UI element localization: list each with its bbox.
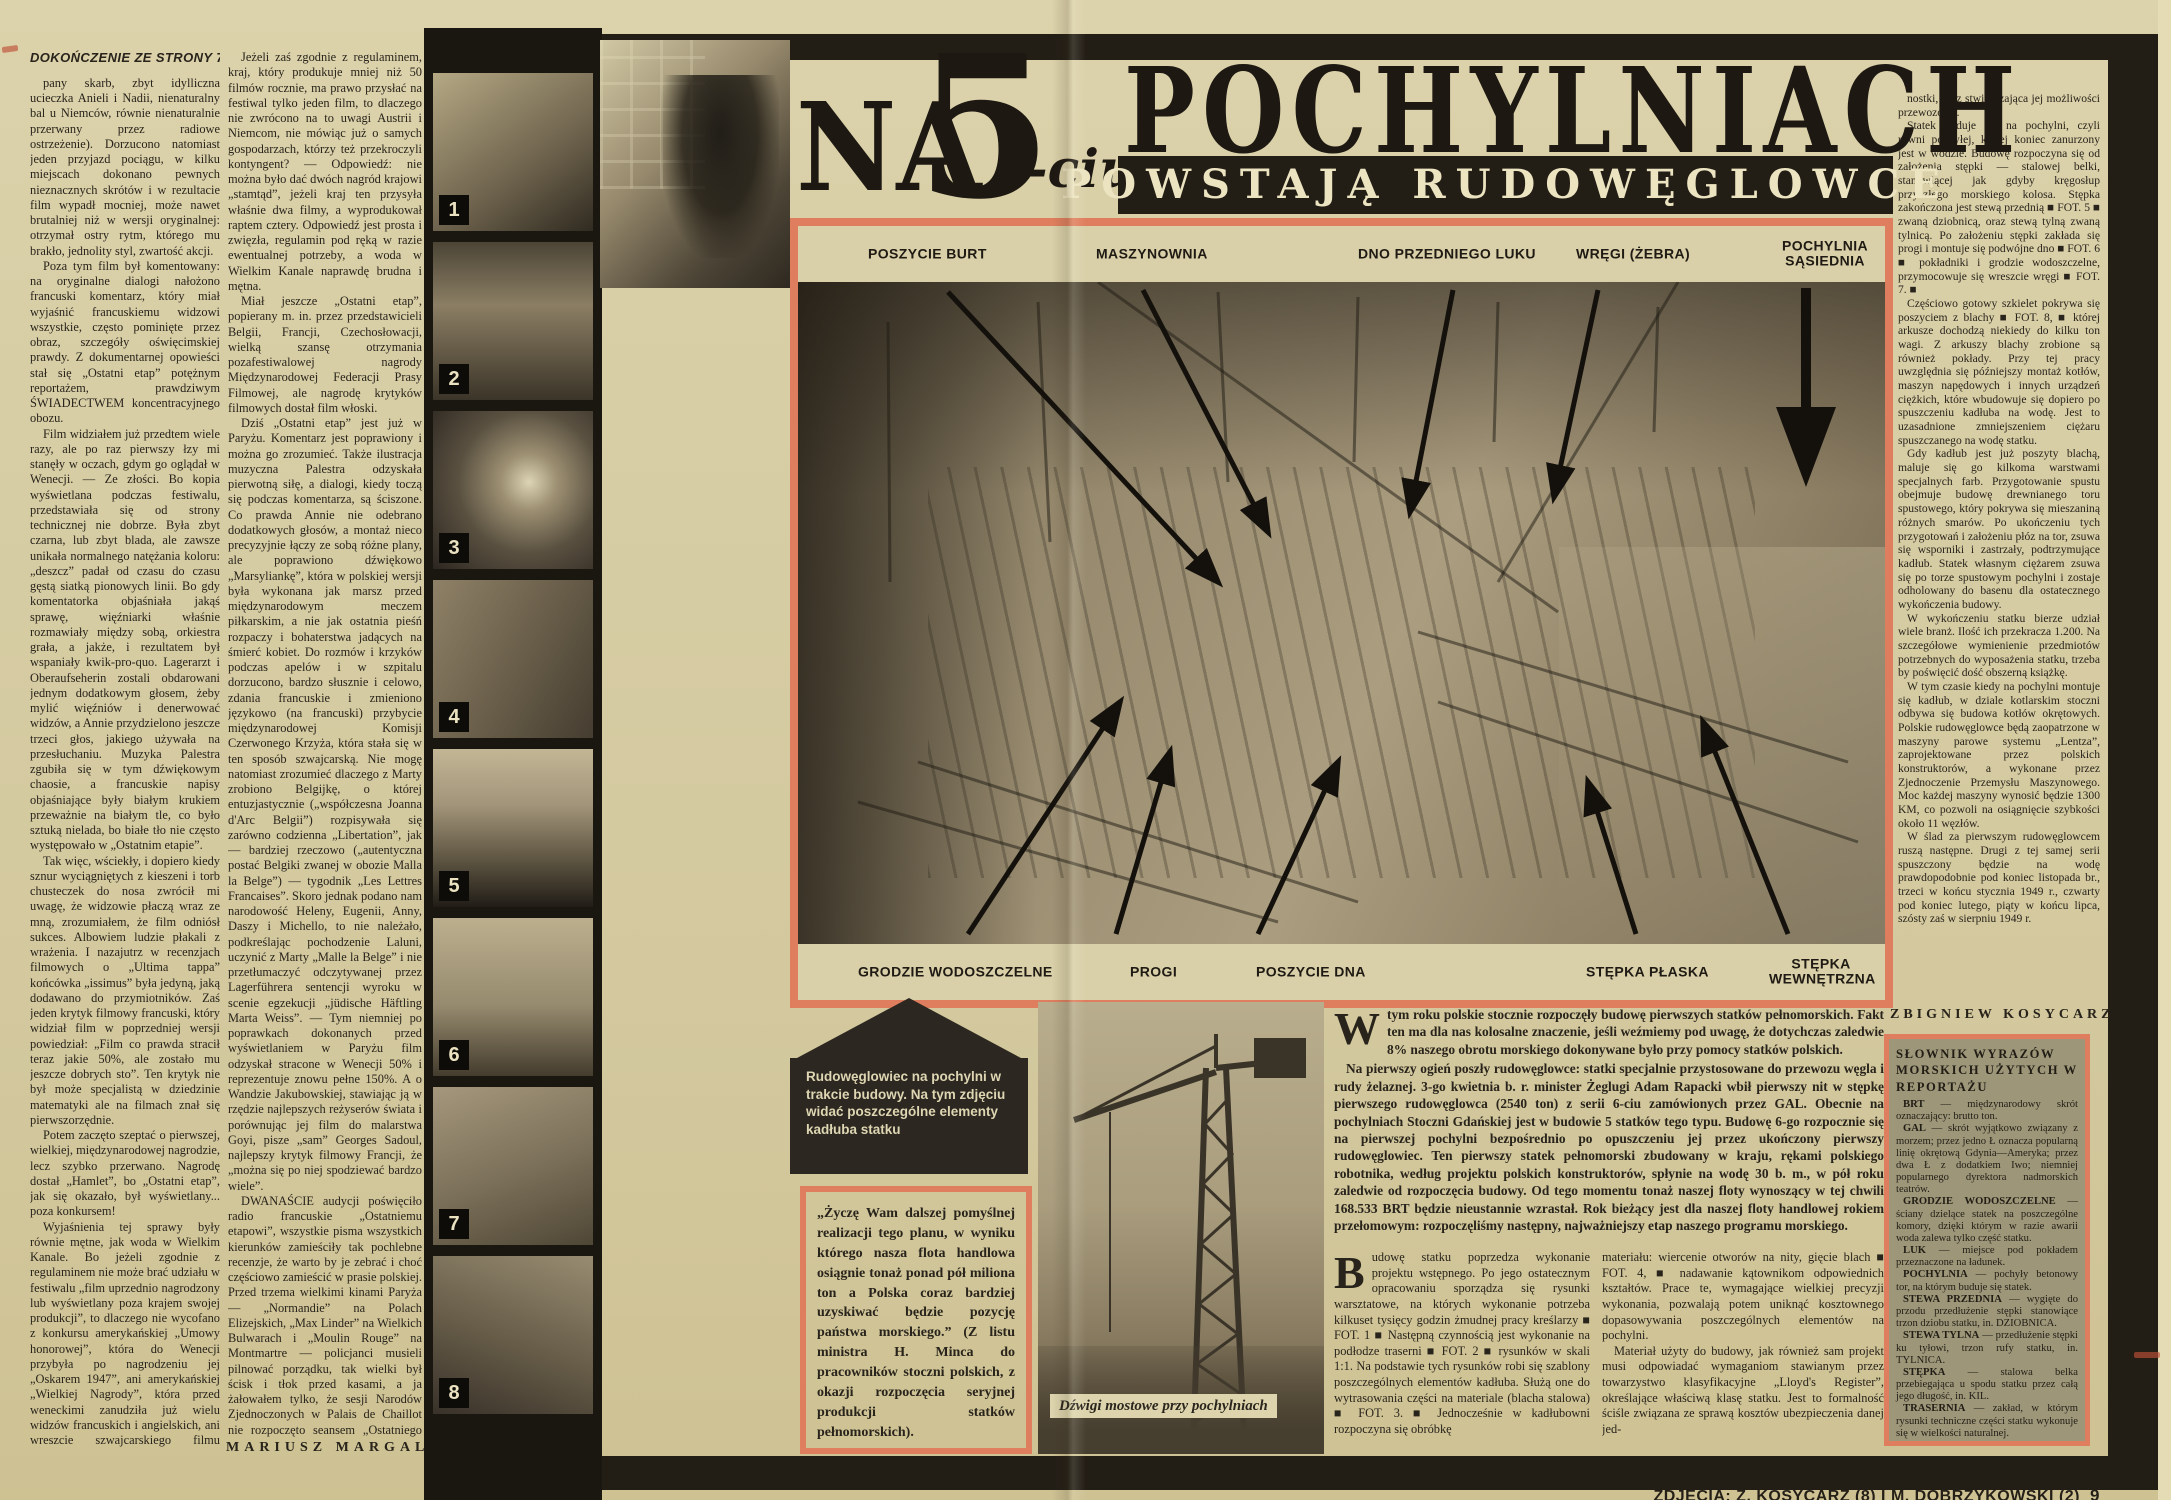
strip-photo: 7 bbox=[433, 1087, 593, 1245]
dictionary-term: GRODZIE WODOSZCZELNE bbox=[1903, 1196, 2056, 1207]
dictionary-term: STEWA PRZEDNIA bbox=[1903, 1294, 2002, 1305]
paragraph: Dziś „Ostatni etap” jest już w Paryżu. K… bbox=[228, 416, 422, 1194]
magazine-spread: DOKOŃCZENIE ZE STRONY 7-MEJ pany skarb, … bbox=[0, 0, 2171, 1500]
paragraph: Potem zaczęto szeptać o pierwszej, wielk… bbox=[30, 1128, 220, 1220]
paragraph: W tym czasie kiedy na pochylni montuje s… bbox=[1898, 680, 2100, 830]
photo-number-badge: 1 bbox=[439, 195, 469, 225]
intro-text-2: Na pierwszy ogień poszły rudowęglowce: s… bbox=[1334, 1060, 1884, 1234]
dictionary-entry: GAL — skrót wyjątkowo związany z morzem;… bbox=[1896, 1123, 2078, 1196]
build-text-a: udowę statku poprzedza wykonanie projekt… bbox=[1334, 1250, 1590, 1436]
dictionary-term: STEWA TYLNA bbox=[1903, 1330, 1979, 1341]
label-stepka-wewnetrzna: STĘPKA WEWNĘTRZNA bbox=[1769, 957, 1873, 988]
paragraph: W ślad za pierwszym rudowęglowcem ruszą … bbox=[1898, 830, 2100, 926]
photo-credit: ZDJĘCIA: Z. KOSYCARZ (8) I M. DOBRZYKOWS… bbox=[1430, 1489, 2080, 1500]
label-pochylnia-sasiednia: POCHYLNIA SĄSIEDNIA bbox=[1773, 239, 1877, 270]
page-number: 9 bbox=[2090, 1487, 2099, 1500]
quote-text: „Życzę Wam dalszej pomyślnej realizacji … bbox=[817, 1206, 1015, 1440]
dictionary-title: SŁOWNIK WYRAZÓW MORSKICH UŻYTYCH W REPOR… bbox=[1896, 1046, 2078, 1095]
paragraph: Wyjaśnienia tej sprawy były równie mętne… bbox=[30, 1220, 220, 1450]
dictionary-definition: — międzynarodowy skrót oznaczający: brut… bbox=[1896, 1099, 2078, 1122]
crane-photo: Dźwigi mostowe przy pochylniach bbox=[1038, 1002, 1324, 1454]
dictionary-entry: GRODZIE WODOSZCZELNE — ściany dzielące s… bbox=[1896, 1196, 2078, 1245]
label-stepka-plaska: STĘPKA PŁASKA bbox=[1586, 964, 1709, 979]
photo-number-badge: 3 bbox=[439, 533, 469, 563]
dropcap-b: B bbox=[1334, 1250, 1372, 1292]
strip-photo: 3 bbox=[433, 411, 593, 569]
photo-number-badge: 2 bbox=[439, 364, 469, 394]
dictionary-term: TRASERNIA bbox=[1903, 1403, 1965, 1414]
photo-number-badge: 7 bbox=[439, 1209, 469, 1239]
column-2-paragraphs: Jeżeli zaś zgodnie z regulaminem, kraj, … bbox=[228, 50, 422, 1438]
intro-paragraph: Wtym roku polskie stocznie rozpoczęły bu… bbox=[1334, 1006, 1884, 1246]
strip-photo: 4 bbox=[433, 580, 593, 738]
column-1-paragraphs: pany skarb, zbyt idylliczna ucieczka Ani… bbox=[30, 76, 220, 1450]
dictionary-entry: STEWA PRZEDNIA — wygięte do przodu przed… bbox=[1896, 1294, 2078, 1331]
strip-photo: 6 bbox=[433, 918, 593, 1076]
crane-caption: Dźwigi mostowe przy pochylniach bbox=[1050, 1394, 1277, 1418]
paragraph: materiału: wiercenie otworów na nity, gi… bbox=[1602, 1250, 1884, 1344]
reporter-signature: ZBIGNIEW KOSYCARZ bbox=[1890, 1008, 2104, 1022]
headline-pochylniach: POCHYLNIACH bbox=[1124, 52, 2023, 170]
paragraph: Tak więc, wściekły, i dopiero kiedy sznu… bbox=[30, 854, 220, 1129]
strip-photo: 1 bbox=[433, 73, 593, 231]
right-column: nostki, oraz stwierdzająca jej możliwośc… bbox=[1898, 92, 2100, 1004]
arrow-caption-box: Rudowęglowiec na pochylni w trakcie budo… bbox=[790, 1058, 1028, 1174]
dictionary-entry: STEWA TYLNA — przedłużenie stępki ku tył… bbox=[1896, 1330, 2078, 1367]
paragraph: Materiał użyty do budowy, jak również sa… bbox=[1602, 1344, 1884, 1438]
dictionary-entry: LUK — miejsce pod pokładem przeznaczone … bbox=[1896, 1245, 2078, 1269]
maritime-dictionary-box: SŁOWNIK WYRAZÓW MORSKICH UŻYTYCH W REPOR… bbox=[1884, 1034, 2090, 1446]
shipyard-photo bbox=[798, 282, 1885, 944]
build-column-a: Budowę statku poprzedza wykonanie projek… bbox=[1334, 1250, 1590, 1456]
paragraph: Częściowo gotowy szkielet pokrywa się po… bbox=[1898, 297, 2100, 447]
article-column-2: Jeżeli zaś zgodnie z regulaminem, kraj, … bbox=[228, 50, 422, 1438]
dictionary-term: GAL bbox=[1903, 1123, 1926, 1134]
dictionary-entry: WĘZEŁ MORSKI — jednostka określająca szy… bbox=[1896, 1440, 2078, 1446]
dictionary-term: LUK bbox=[1903, 1245, 1926, 1256]
paragraph: Jeżeli zaś zgodnie z regulaminem, kraj, … bbox=[228, 50, 422, 294]
photo-number-badge: 5 bbox=[439, 871, 469, 901]
dictionary-term: WĘZEŁ MORSKI bbox=[1903, 1440, 2000, 1446]
photo-number-badge: 4 bbox=[439, 702, 469, 732]
author-signature: MARIUSZ MARGAL bbox=[226, 1440, 426, 1456]
headline-subtitle-bar: POWSTAJĄ RUDOWĘGLOWCE bbox=[1118, 156, 1893, 214]
dictionary-term: STĘPKA bbox=[1903, 1367, 1945, 1378]
dictionary-term: POCHYLNIA bbox=[1903, 1269, 1968, 1280]
dictionary-entry: BRT — międzynarodowy skrót oznaczający: … bbox=[1896, 1099, 2078, 1123]
continuation-header: DOKOŃCZENIE ZE STRONY 7-MEJ bbox=[30, 50, 220, 66]
paragraph: Miał jeszcze „Ostatni etap”, popierany m… bbox=[228, 294, 422, 416]
build-column-b: materiału: wiercenie otworów na nity, gi… bbox=[1602, 1250, 1884, 1456]
figure-silhouette bbox=[661, 75, 779, 259]
headline-subtitle: POWSTAJĄ RUDOWĘGLOWCE bbox=[1061, 165, 1950, 205]
photo-number-badge: 8 bbox=[439, 1378, 469, 1408]
label-progi: PROGI bbox=[1130, 964, 1177, 979]
draftsman-photo bbox=[600, 40, 790, 288]
label-maszynownia: MASZYNOWNIA bbox=[1096, 246, 1208, 261]
dictionary-term: BRT bbox=[1903, 1099, 1924, 1110]
right-column-paragraphs: nostki, oraz stwierdzająca jej możliwośc… bbox=[1898, 92, 2100, 926]
dropcap-w: W bbox=[1334, 1006, 1387, 1048]
minister-quote-box: „Życzę Wam dalszej pomyślnej realizacji … bbox=[800, 1186, 1032, 1454]
dictionary-entry: TRASERNIA — zakład, w którym rysunki tec… bbox=[1896, 1403, 2078, 1440]
right-rule-bar bbox=[2108, 34, 2158, 1490]
dictionary-entry: STĘPKA — stalowa belka przebiegająca u s… bbox=[1896, 1367, 2078, 1404]
paragraph: DWANAŚCIE audycji poświęciło radio franc… bbox=[228, 1194, 422, 1438]
label-poszycie-dna: POSZYCIE DNA bbox=[1256, 964, 1366, 979]
paragraph: pany skarb, zbyt idylliczna ucieczka Ani… bbox=[30, 76, 220, 259]
paragraph: W wykończeniu statku bierze udział wiele… bbox=[1898, 612, 2100, 680]
article-column-1: DOKOŃCZENIE ZE STRONY 7-MEJ pany skarb, … bbox=[30, 50, 220, 1450]
photo-strip: 1 2 3 4 5 6 bbox=[424, 28, 602, 1500]
photo-strip-items: 1 2 3 4 5 6 bbox=[424, 62, 602, 1425]
label-wregi-zebra: WRĘGI (ŻEBRA) bbox=[1576, 246, 1690, 261]
main-shipyard-photo-frame: POSZYCIE BURT MASZYNOWNIA DNO PRZEDNIEGO… bbox=[790, 218, 1893, 1008]
bottom-label-bar: GRODZIE WODOSZCZELNE PROGI POSZYCIE DNA … bbox=[798, 944, 1885, 1000]
dictionary-entries: BRT — międzynarodowy skrót oznaczający: … bbox=[1896, 1099, 2078, 1446]
intro-text-1: tym roku polskie stocznie rozpoczęły bud… bbox=[1387, 1007, 1884, 1057]
strip-photo: 2 bbox=[433, 242, 593, 400]
page-edge bbox=[2158, 0, 2171, 1500]
label-poszycie-burt: POSZYCIE BURT bbox=[868, 246, 987, 261]
label-grodzie-wodoszczelne: GRODZIE WODOSZCZELNE bbox=[858, 964, 1053, 979]
strip-photo: 5 bbox=[433, 749, 593, 907]
label-arrows bbox=[798, 282, 1885, 944]
red-pencil-mark bbox=[2134, 1352, 2160, 1358]
paragraph: Film widziałem już przedtem wiele razy, … bbox=[30, 427, 220, 854]
photo-number-badge: 6 bbox=[439, 1040, 469, 1070]
label-dno-przedniego-luku: DNO PRZEDNIEGO LUKU bbox=[1358, 246, 1536, 261]
arrow-caption-text: Rudowęglowiec na pochylni w trakcie budo… bbox=[806, 1069, 1005, 1137]
paragraph: Gdy kadłub jest już poszyty blachą, malu… bbox=[1898, 447, 2100, 611]
dictionary-entry: POCHYLNIA — pochyły betonowy tor, na któ… bbox=[1896, 1269, 2078, 1293]
paragraph: Poza tym film był komentowany: na orygin… bbox=[30, 259, 220, 427]
strip-photo: 8 bbox=[433, 1256, 593, 1414]
red-pencil-mark bbox=[2, 45, 19, 53]
bottom-rule-bar bbox=[424, 1456, 2171, 1490]
build-b-paragraphs: materiału: wiercenie otworów na nity, gi… bbox=[1602, 1250, 1884, 1438]
